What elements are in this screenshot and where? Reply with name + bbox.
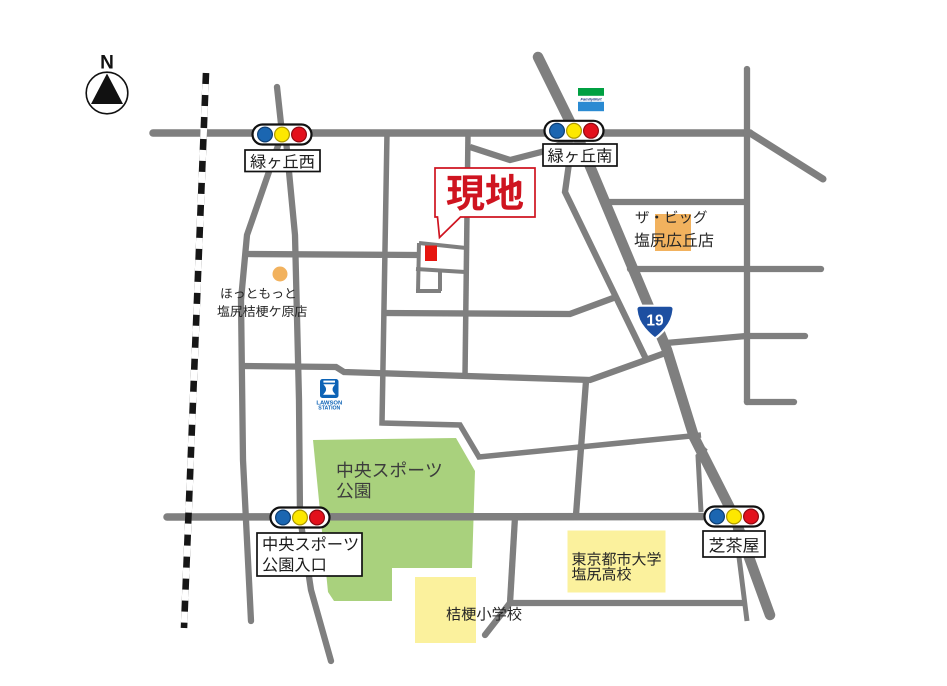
svg-text:STATION: STATION (318, 406, 340, 412)
svg-text:N: N (100, 53, 114, 74)
svg-text:FamilyMart: FamilyMart (580, 96, 602, 101)
svg-text:19: 19 (646, 313, 664, 330)
